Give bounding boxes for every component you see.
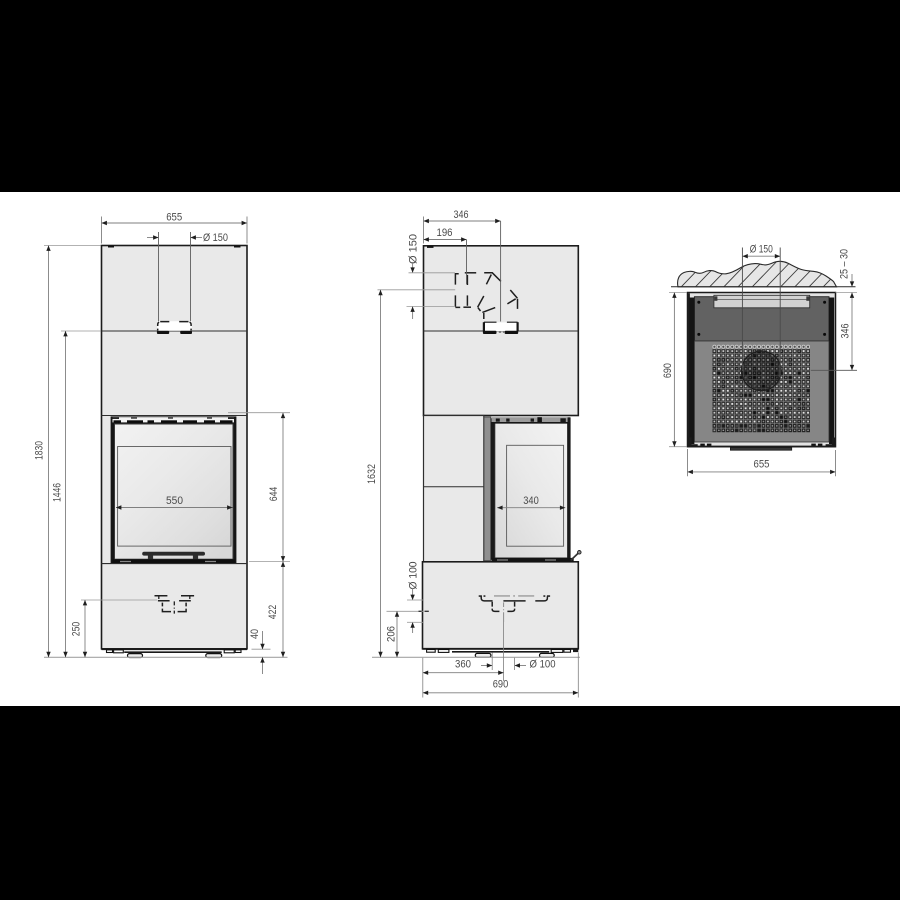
svg-text:346: 346	[840, 324, 852, 339]
svg-text:Ø 150: Ø 150	[408, 234, 420, 264]
svg-text:1830: 1830	[34, 441, 46, 460]
svg-text:655: 655	[166, 211, 182, 223]
svg-text:340: 340	[523, 495, 539, 507]
svg-text:422: 422	[267, 605, 279, 620]
svg-text:250: 250	[71, 622, 83, 637]
svg-text:Ø 100: Ø 100	[530, 658, 556, 670]
svg-text:25 – 30: 25 – 30	[839, 249, 851, 279]
svg-text:1446: 1446	[52, 483, 64, 502]
svg-text:1632: 1632	[366, 464, 378, 484]
svg-text:Ø 100: Ø 100	[408, 562, 420, 590]
svg-text:40: 40	[249, 629, 261, 639]
svg-text:690: 690	[493, 679, 509, 691]
svg-text:Ø 150: Ø 150	[203, 232, 228, 244]
svg-text:206: 206	[385, 626, 397, 642]
svg-text:690: 690	[662, 363, 674, 378]
svg-text:360: 360	[455, 659, 471, 671]
svg-text:655: 655	[754, 458, 770, 470]
svg-text:550: 550	[166, 495, 183, 507]
svg-text:346: 346	[454, 209, 469, 221]
svg-text:644: 644	[268, 487, 280, 502]
svg-text:Ø 150: Ø 150	[750, 243, 773, 255]
svg-text:196: 196	[437, 227, 453, 239]
